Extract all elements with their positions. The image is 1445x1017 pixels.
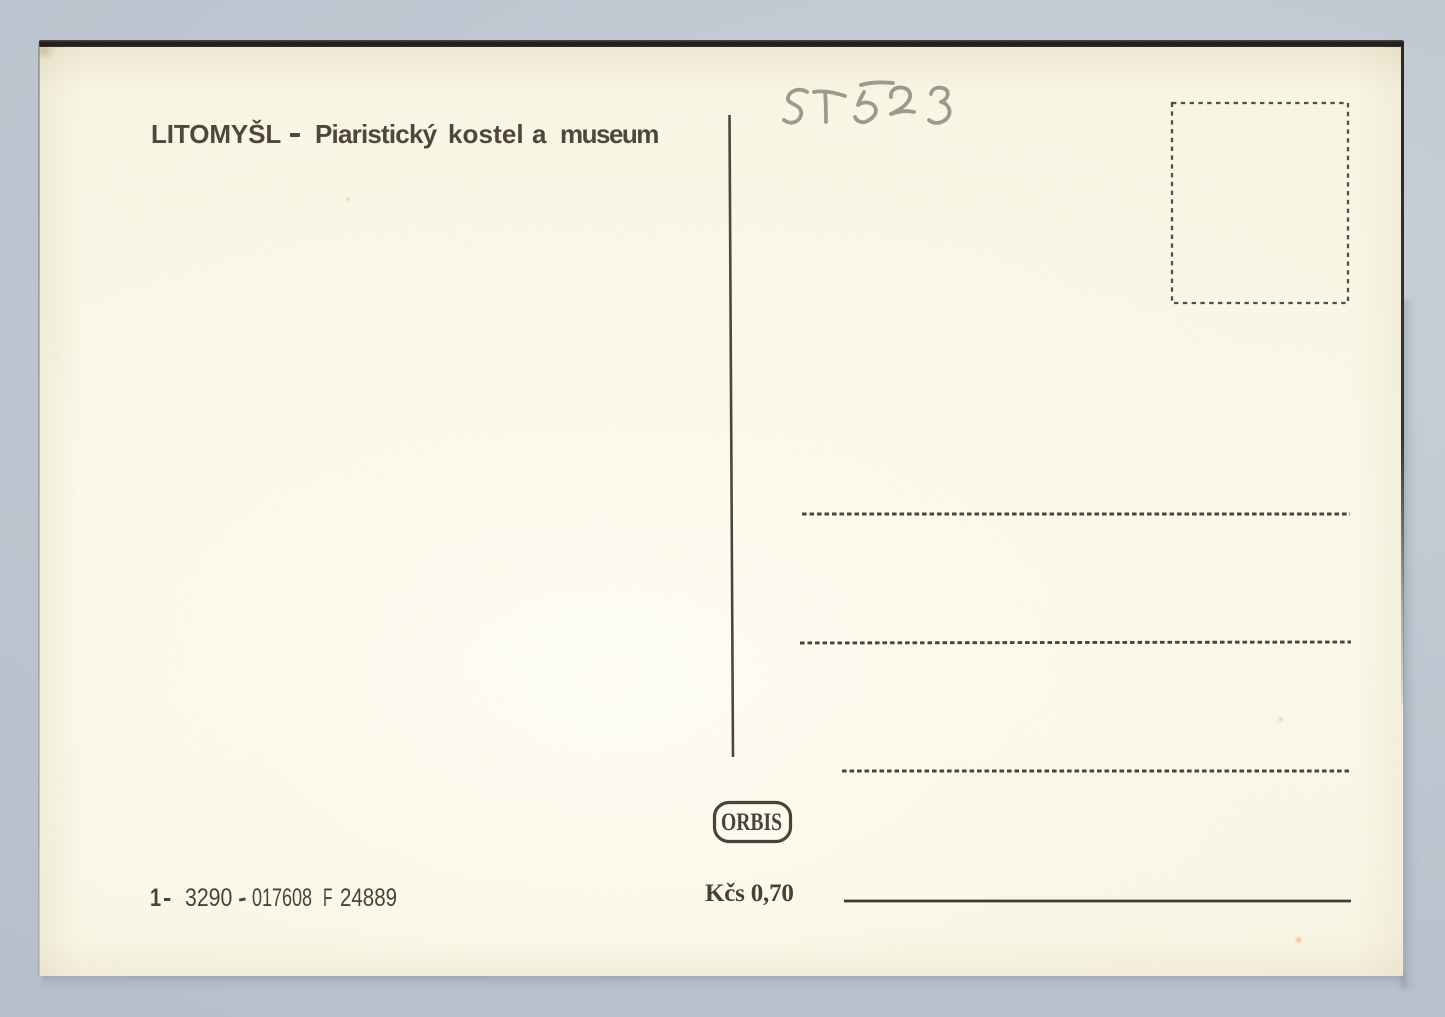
svg-text:ORBIS: ORBIS [721, 809, 782, 836]
